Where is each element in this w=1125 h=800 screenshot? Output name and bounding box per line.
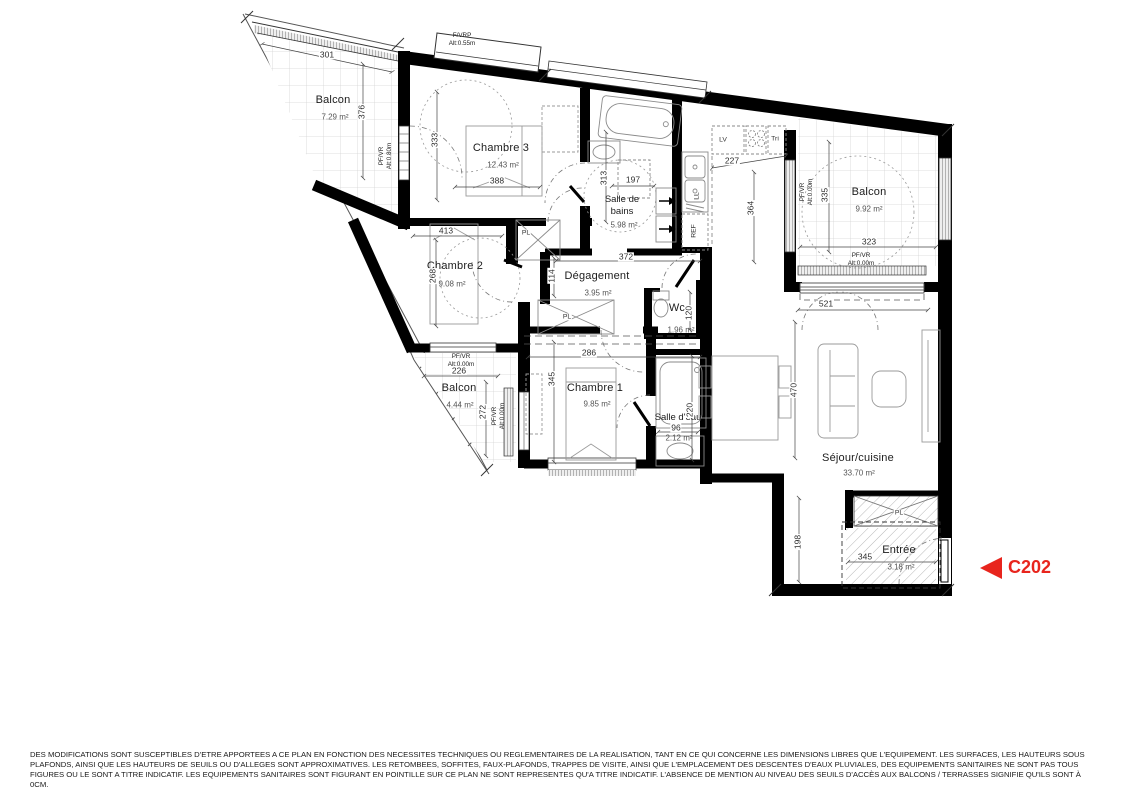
window-note-pfvr-bl-top: PF/VR Alt:0.00m	[448, 353, 475, 369]
room-area-balcon-r: 9.92 m²	[855, 205, 882, 214]
room-label-balcon-bl: Balcon	[442, 382, 477, 394]
window-note-pfvr-blr-alt: Alt:0.00m	[499, 403, 507, 430]
appliance-label-tri: Tri	[770, 136, 780, 143]
window-note-pfvr-blr-type: PF/VR	[491, 403, 499, 430]
appliance-label-ref: REF	[691, 223, 698, 239]
window-note-pfvr-rb-alt: Alt:0.00m	[848, 260, 875, 268]
dim-301: 301	[319, 50, 335, 59]
window-note-pfvr-right-wall: PF/VR Alt:0.00m	[799, 179, 815, 206]
window-note-fvrp-alt: Alt:0.55m	[449, 40, 476, 48]
room-area-chambre3: 12.43 m²	[487, 161, 519, 170]
dim-272: 272	[478, 404, 487, 420]
dim-345-entree: 345	[857, 552, 873, 561]
room-label-balcon-tl: Balcon	[316, 94, 351, 106]
floor-plan-graphics	[0, 0, 1125, 800]
room-area-sdb: 5.98 m²	[610, 221, 637, 230]
room-label-entree: Entrée	[882, 544, 916, 556]
living-furniture	[699, 330, 940, 442]
room-area-chambre2: 9.08 m²	[438, 280, 465, 289]
dim-335: 335	[820, 187, 829, 203]
room-label-degagement: Dégagement	[565, 270, 630, 282]
room-area-balcon-bl: 4.44 m²	[446, 401, 473, 410]
room-label-chambre3: Chambre 3	[473, 142, 529, 154]
window-note-pfvr-bl-right: PF/VR Alt:0.00m	[491, 403, 507, 430]
dim-323: 323	[861, 237, 877, 246]
closet-label-degagement: PL	[562, 314, 572, 321]
dim-96: 96	[670, 423, 681, 432]
room-area-wc: 1.96 m²	[667, 326, 694, 335]
room-label-sejour: Séjour/cuisine	[822, 452, 894, 464]
kitchen-fixtures	[682, 126, 786, 250]
window-note-pfvr-right-bottom: PF/VR Alt:0.00m	[848, 252, 875, 268]
room-label-sdb: Salle de bains	[605, 194, 639, 218]
room-area-salle-eau: 2.12 m²	[665, 434, 692, 443]
room-area-balcon-tl: 7.29 m²	[321, 113, 348, 122]
unit-code-label: C202	[1008, 557, 1051, 578]
window-note-pfvr-tl-type: PF/VR	[378, 143, 386, 170]
dim-114: 114	[547, 268, 556, 284]
window-note-fvrp: F/VRP Alt:0.55m	[449, 32, 476, 48]
dim-313: 313	[599, 170, 608, 186]
dim-345-chambre1: 345	[547, 371, 556, 387]
window-note-fvrp-type: F/VRP	[449, 32, 476, 40]
window-note-pfvr-tl: PF/VR Alt:0.80m	[378, 143, 394, 170]
dim-197: 197	[625, 175, 641, 184]
dim-521: 521	[818, 299, 834, 308]
dim-376: 376	[357, 104, 366, 120]
window-note-pfvr-rw-alt: Alt:0.00m	[807, 179, 815, 206]
window-note-pfvr-tl-alt: Alt:0.80m	[386, 143, 394, 170]
room-area-entree: 3.18 m²	[887, 563, 914, 572]
dim-286: 286	[581, 348, 597, 357]
dim-120: 120	[684, 305, 693, 321]
dim-268: 268	[428, 268, 437, 284]
appliance-label-ll: LL	[694, 191, 701, 201]
window-note-pfvr-blt-type: PF/VR	[448, 353, 475, 361]
closet-label-entree: PL	[894, 510, 904, 517]
room-label-balcon-r: Balcon	[852, 186, 887, 198]
dim-470: 470	[789, 382, 798, 398]
dim-388: 388	[489, 176, 505, 185]
room-label-sdb-line2: bains	[605, 206, 639, 218]
dim-333: 333	[430, 132, 439, 148]
appliance-label-lv: LV	[718, 137, 728, 144]
room-area-chambre1: 9.85 m²	[583, 400, 610, 409]
room-area-sejour: 33.70 m²	[843, 469, 875, 478]
dim-227: 227	[724, 156, 740, 165]
room-area-degagement: 3.95 m²	[584, 289, 611, 298]
closet-label-chambre2: PL	[521, 230, 531, 237]
dim-198: 198	[793, 534, 802, 550]
window-note-pfvr-rb-type: PF/VR	[848, 252, 875, 260]
plan-disclaimer: DES MODIFICATIONS SONT SUSCEPTIBLES D'ET…	[30, 750, 1098, 791]
room-label-chambre1: Chambre 1	[567, 382, 623, 394]
room-label-sdb-line1: Salle de	[605, 194, 639, 206]
dim-372: 372	[618, 252, 634, 261]
window-note-pfvr-blt-alt: Alt:0.00m	[448, 361, 475, 369]
window-note-pfvr-rw-type: PF/VR	[799, 179, 807, 206]
dim-220: 220	[685, 402, 694, 418]
dim-413: 413	[438, 226, 454, 235]
dim-364: 364	[746, 200, 755, 216]
unit-pointer-icon	[980, 557, 1002, 579]
